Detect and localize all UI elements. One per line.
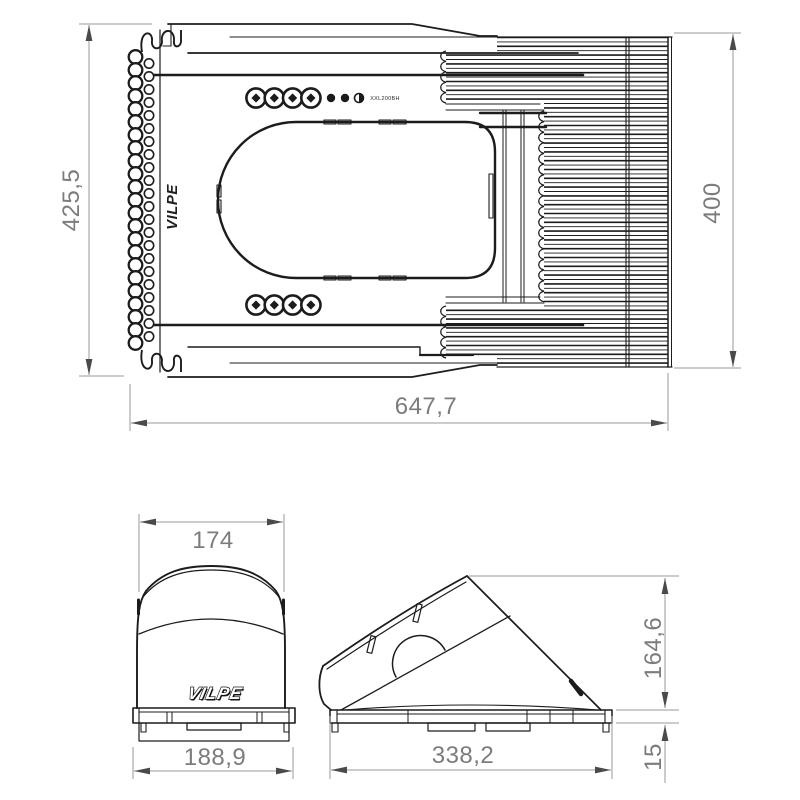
vilpe-logo-front: VILPE VILPE <box>186 683 246 704</box>
obround-opening <box>217 120 495 280</box>
indicator-dots <box>327 94 364 103</box>
arrowhead <box>662 725 669 741</box>
mold-marking-text: XXL200BH <box>370 96 400 102</box>
rib-field <box>441 37 672 367</box>
arrowhead <box>134 768 150 775</box>
drawing-canvas: XXL200BH VILPE 425,5 400 647,7 <box>0 0 800 800</box>
technical-drawing: XXL200BH VILPE 425,5 400 647,7 <box>0 0 800 800</box>
dim-label: 174 <box>192 527 234 554</box>
dot-icon <box>341 94 349 102</box>
top-view: XXL200BH VILPE 425,5 400 647,7 <box>58 24 741 431</box>
arrowhead <box>267 519 283 526</box>
dim-vent-section-height: 400 <box>674 33 741 368</box>
chain-ornament-lower <box>246 295 320 314</box>
arrowhead <box>86 359 93 375</box>
chain-ornament-upper <box>246 88 320 107</box>
vilpe-logo-top: VILPE <box>164 184 181 230</box>
dim-label: 400 <box>699 182 726 224</box>
arrowhead <box>331 767 347 774</box>
opening-clip-ticks <box>217 120 493 280</box>
arrowhead <box>140 519 156 526</box>
dim-label: 647,7 <box>395 393 458 420</box>
dim-label: 15 <box>640 743 667 771</box>
dim-label: 425,5 <box>58 169 85 232</box>
dim-label: 338,2 <box>432 742 495 769</box>
arrowhead <box>86 25 93 41</box>
arrowhead <box>595 767 611 774</box>
arrowhead <box>651 420 667 427</box>
dot-icon <box>327 94 335 102</box>
dim-overall-length: 647,7 <box>130 373 668 431</box>
side-base-flange <box>330 705 612 732</box>
side-view: 338,2 164,6 15 <box>319 576 679 783</box>
arrowhead <box>276 768 292 775</box>
dim-base-length: 338,2 <box>330 716 612 779</box>
hood-profile <box>319 576 601 710</box>
dim-label: 164,6 <box>640 617 667 680</box>
arrowhead <box>730 34 737 50</box>
front-view: VILPE VILPE 174 188,9 <box>133 514 295 779</box>
dim-base-thickness: 15 <box>616 723 679 783</box>
front-base-flange <box>133 708 295 741</box>
arrowhead <box>662 578 669 594</box>
dim-base-width: 188,9 <box>133 744 293 779</box>
vilpe-logo-text: VILPE <box>186 683 244 703</box>
arrowhead <box>131 420 147 427</box>
arrowhead <box>730 351 737 367</box>
arrowhead <box>662 692 669 708</box>
dim-label: 188,9 <box>184 744 247 771</box>
dim-hood-width: 174 <box>139 514 284 592</box>
dim-hood-height: 164,6 <box>469 576 679 710</box>
